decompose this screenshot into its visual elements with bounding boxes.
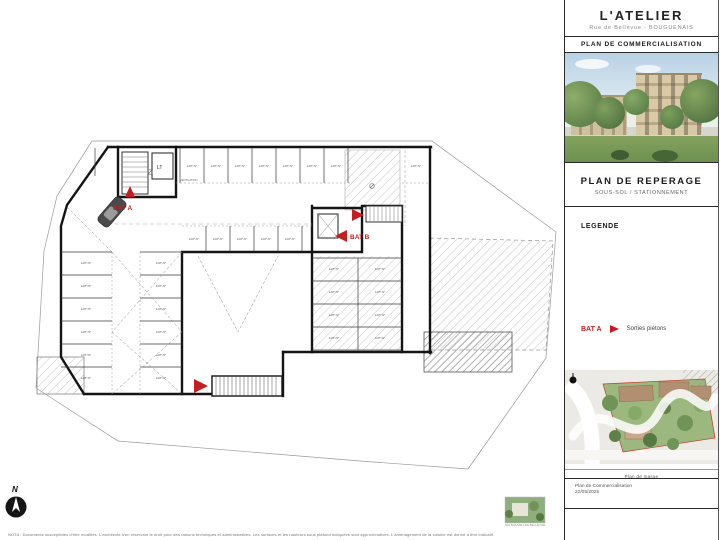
lot-label: LOT N°: [156, 307, 167, 311]
bat-b-label: BAT B: [350, 234, 370, 241]
ramp-arrow: [194, 379, 208, 393]
render-cloud: [575, 59, 609, 69]
lot-label: LOT N°: [283, 164, 294, 168]
render-tree: [623, 89, 649, 115]
lot-label: LOT N°: [375, 313, 386, 317]
render-tree: [593, 97, 625, 129]
lot-label: LOT N°: [81, 307, 92, 311]
render-cloud: [635, 65, 661, 73]
hatched-zone-bottom-left: [37, 357, 84, 394]
lot-label: LOT N°: [81, 376, 92, 380]
lot-label: LOT N°: [329, 267, 340, 271]
lot-label: LOT N°: [189, 237, 200, 241]
vehicle-ramp: [212, 376, 282, 396]
car-icon: [96, 195, 128, 228]
issue-date: 22/05/2025: [575, 490, 708, 496]
lot-label: LOT N°: [211, 164, 222, 168]
elevator-label: LT: [157, 165, 162, 171]
doc-type-bar: PLAN DE COMMERCIALISATION: [565, 36, 718, 53]
lot-label: LOT N°: [329, 336, 340, 340]
site-map-section: Plan de masse: [565, 370, 718, 478]
plan-subtitle: SOUS-SOL / STATIONNEMENT: [565, 190, 718, 196]
lot-label: LOT N°: [156, 330, 167, 334]
legend-bat-a-label: BAT A: [581, 326, 602, 333]
lot-label: LOT N°: [187, 164, 198, 168]
lot-label: LOT N°: [156, 353, 167, 357]
stair-bat-a: [122, 152, 148, 194]
arrow-right-icon: [610, 325, 619, 333]
hatched-zone-top: [345, 150, 400, 210]
plan-sheet: BAT A BAT B LT VENTILATION LOT N°LOT N°L…: [0, 0, 720, 540]
lot-label: LOT N°: [81, 284, 92, 288]
legend-description: Sorties piétons: [627, 326, 667, 332]
plan-title: PLAN DE REPERAGE: [565, 176, 718, 187]
legend-section: LEGENDE BAT A Sorties piétons: [565, 206, 718, 370]
lot-label: LOT N°: [237, 237, 248, 241]
render-tree: [680, 79, 718, 123]
plan-title-section: PLAN DE REPERAGE SOUS-SOL / STATIONNEMEN…: [565, 162, 718, 206]
lot-label: LOT N°: [261, 237, 272, 241]
lot-label: LOT N°: [375, 336, 386, 340]
project-title: L'ATELIER: [565, 8, 718, 23]
stair-bat-b: [366, 206, 402, 222]
render-bush: [652, 150, 678, 162]
north-label: N: [12, 485, 18, 494]
legend-heading: LEGENDE: [581, 223, 619, 230]
lot-label: LOT N°: [156, 376, 167, 380]
lot-label: LOT N°: [331, 164, 342, 168]
bat-a-label: BAT A: [113, 205, 132, 212]
hatched-zones: [37, 150, 553, 394]
lot-label: LOT N°: [375, 290, 386, 294]
ventilation-label: VENTILATION: [180, 178, 197, 182]
lot-label: LOT N°: [259, 164, 270, 168]
lot-label: LOT N°: [81, 353, 92, 357]
project-header: L'ATELIER Rue de Bellevue - BOUGUENAIS: [565, 0, 718, 36]
lot-label: LOT N°: [285, 237, 296, 241]
project-address: Rue de Bellevue - BOUGUENAIS: [565, 25, 718, 31]
building-render-image: [565, 53, 718, 162]
render-bush: [611, 150, 629, 160]
plan-drawing: BAT A BAT B LT VENTILATION LOT N°LOT N°L…: [0, 0, 564, 540]
lot-label: LOT N°: [329, 313, 340, 317]
lot-label: LOT N°: [156, 284, 167, 288]
promoter-logo: [505, 497, 545, 523]
render-tree: [660, 105, 684, 129]
lot-label: LOT N°: [329, 290, 340, 294]
lot-label: LOT N°: [156, 261, 167, 265]
lot-label: LOT N°: [235, 164, 246, 168]
lot-label: LOT N°: [411, 164, 422, 168]
hatched-zone-right-wing: [312, 256, 402, 350]
lot-label: LOT N°: [213, 237, 224, 241]
site-map-caption: Plan de masse: [565, 469, 718, 483]
site-map-image: [565, 370, 718, 464]
lot-label: LOT N°: [81, 330, 92, 334]
title-block-panel: L'ATELIER Rue de Bellevue - BOUGUENAIS P…: [564, 0, 719, 540]
nota-disclaimer: NOTA : Documents susceptibles d'être mod…: [8, 532, 608, 537]
lot-label: LOT N°: [81, 261, 92, 265]
hatched-block-dark: [424, 332, 512, 372]
promoter-logo-caption: SCI NOUVELLES BELLEVUE: [505, 524, 560, 528]
basement-parking-plan: BAT A BAT B LT VENTILATION LOT N°LOT N°L…: [0, 0, 564, 540]
lot-label: LOT N°: [375, 267, 386, 271]
legend-entry: BAT A Sorties piétons: [581, 325, 666, 333]
north-compass-icon: N: [6, 485, 27, 518]
elevator-bat-a: [152, 153, 173, 179]
lot-label: LOT N°: [307, 164, 318, 168]
